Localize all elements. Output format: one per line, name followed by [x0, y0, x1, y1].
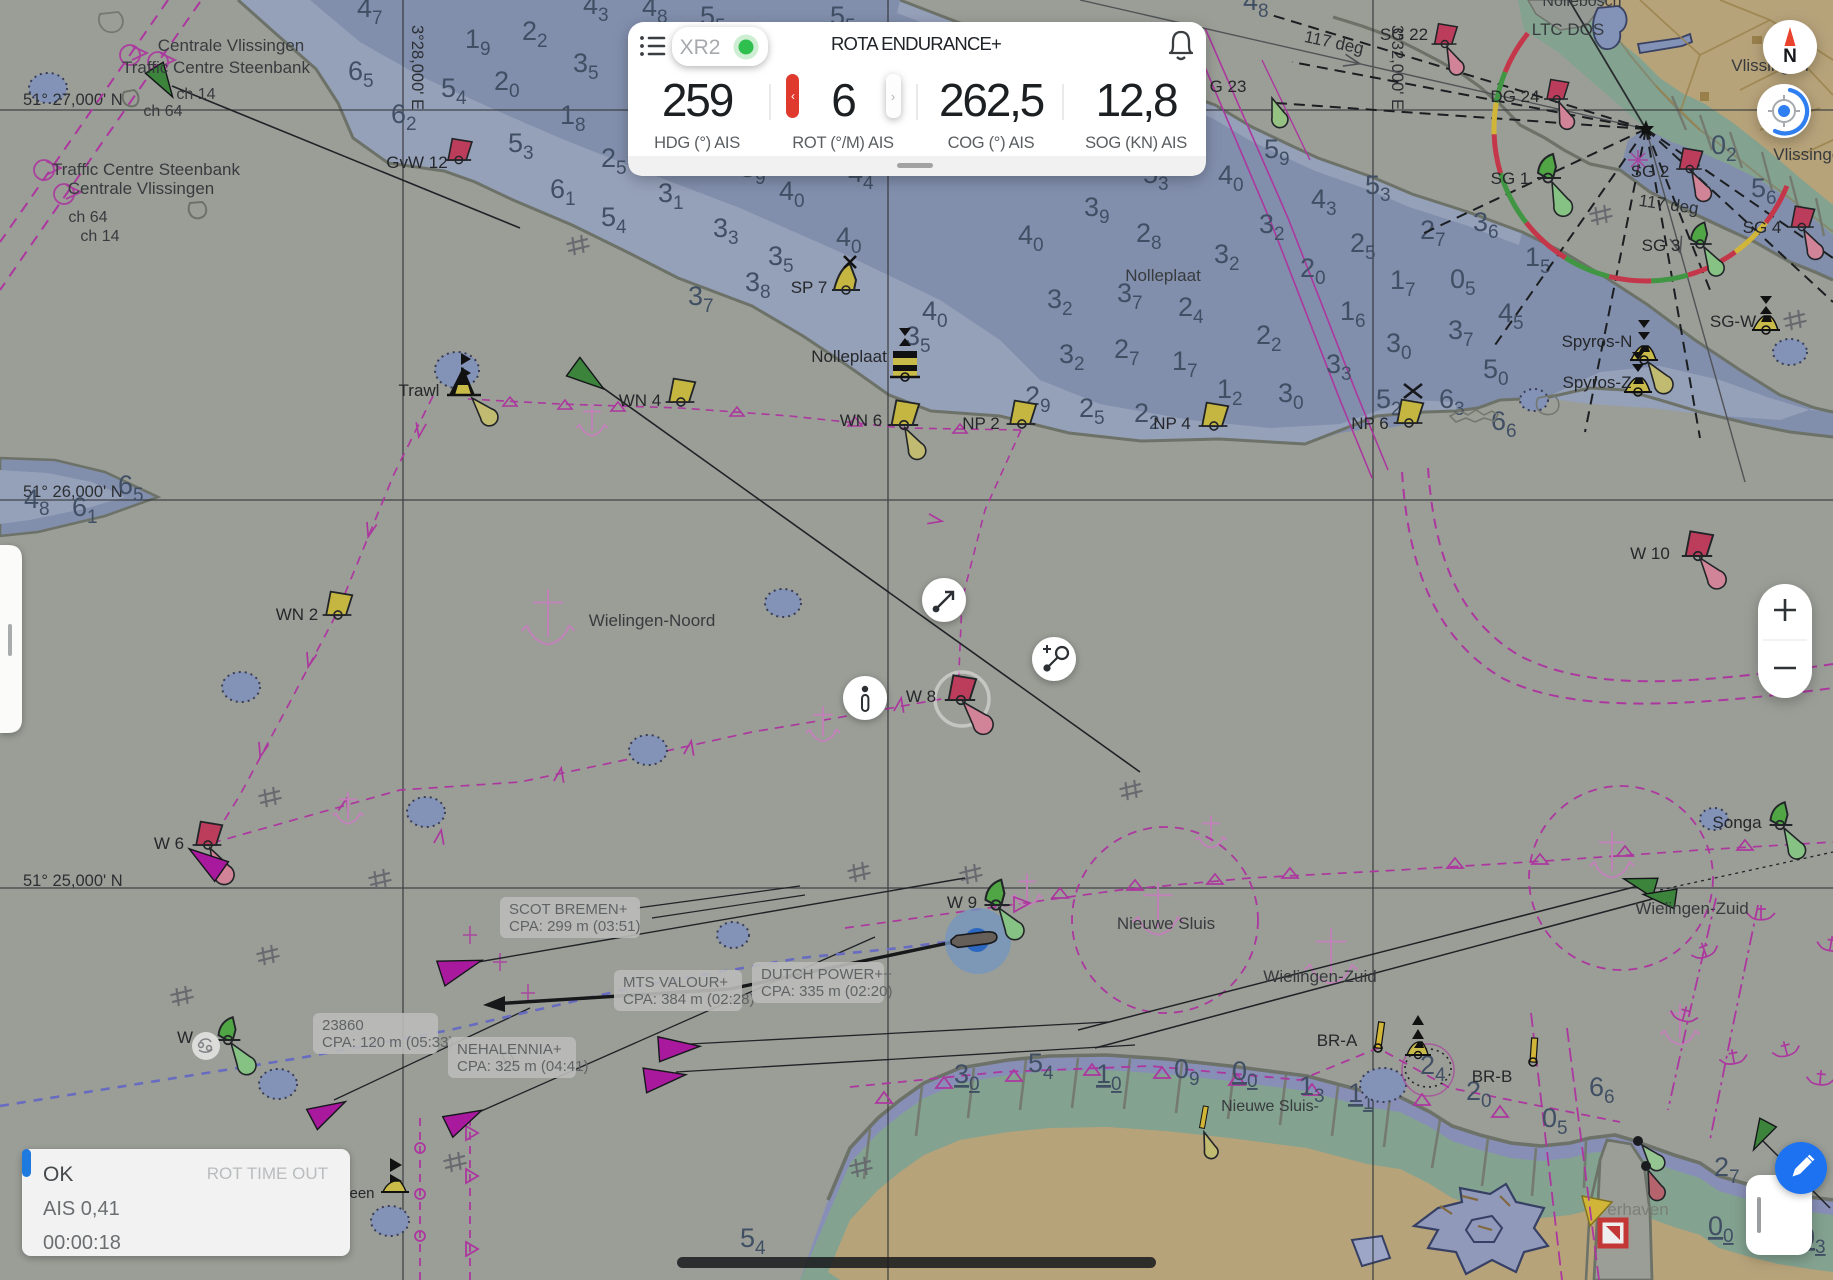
- svg-text:SOG (KN) AIS: SOG (KN) AIS: [1085, 134, 1187, 152]
- svg-text:ROT TIME OUT: ROT TIME OUT: [207, 1164, 328, 1183]
- svg-text:262,5: 262,5: [939, 74, 1044, 126]
- svg-text:AIS 0,41: AIS 0,41: [43, 1198, 120, 1220]
- svg-text:ROT (°/M) AIS: ROT (°/M) AIS: [792, 134, 894, 152]
- svg-text:N: N: [1783, 46, 1797, 67]
- svg-text:XR2: XR2: [680, 36, 721, 59]
- svg-text:COG (°) AIS: COG (°) AIS: [948, 134, 1035, 152]
- svg-text:HDG (°) AIS: HDG (°) AIS: [654, 134, 740, 152]
- svg-text:12,8: 12,8: [1096, 74, 1177, 126]
- svg-text:‹: ‹: [791, 89, 795, 103]
- svg-text:259: 259: [662, 74, 733, 126]
- svg-text:00:00:18: 00:00:18: [43, 1232, 121, 1254]
- svg-text:6: 6: [831, 74, 855, 126]
- svg-text:ROTA ENDURANCE+: ROTA ENDURANCE+: [831, 33, 1001, 54]
- svg-text:›: ›: [891, 89, 895, 104]
- svg-text:OK: OK: [43, 1163, 73, 1186]
